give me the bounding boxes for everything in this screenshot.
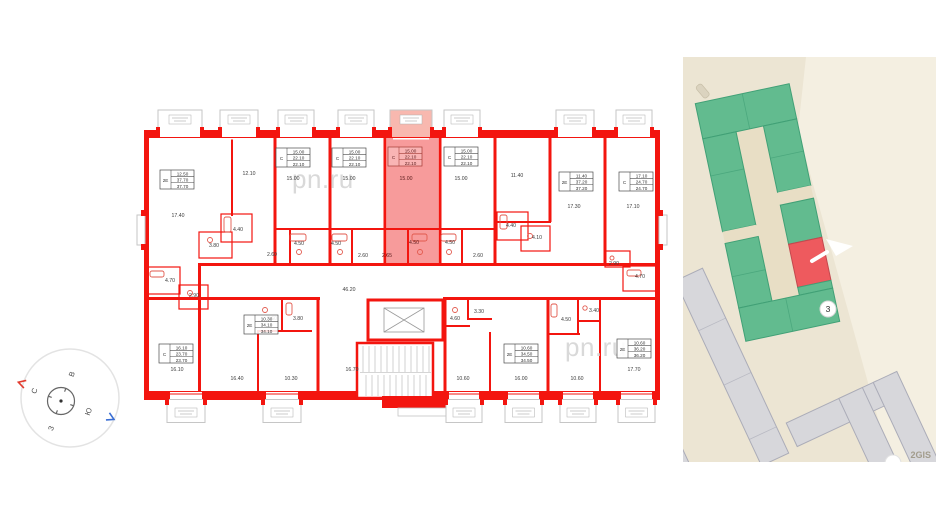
unit-area-2: 23.70 <box>176 352 188 357</box>
unit-area-1: 15.00 <box>405 148 417 153</box>
unit-area-1: 11.40 <box>576 173 588 178</box>
bay-window-left <box>137 210 147 250</box>
room-area-label: 4.50 <box>409 240 419 246</box>
room-area-label: 2.60 <box>358 253 368 259</box>
room-area-label: 4.50 <box>445 240 455 246</box>
balcony-tag <box>169 115 191 124</box>
room-area-label: 15.00 <box>287 176 300 182</box>
room-area-label: 3.30 <box>474 309 484 315</box>
elevator <box>368 300 443 340</box>
room-area-label: 10.60 <box>571 376 584 382</box>
room-area-label: 17.10 <box>627 204 640 210</box>
unit-area-1: 10.60 <box>634 340 646 345</box>
room-area-label: 4.70 <box>635 274 645 280</box>
unit-area-3: 24.70 <box>636 186 648 191</box>
unit-area-1: 15.00 <box>461 148 473 153</box>
room-area-label: 2.60 <box>473 253 483 259</box>
unit-area-1: 16.10 <box>176 345 188 350</box>
unit-label[interactable]: С15.0022.1022.10 <box>444 147 478 166</box>
balcony-tag <box>228 115 250 124</box>
unit-area-3: 22.10 <box>461 161 473 166</box>
unit-area-1: 10.60 <box>521 345 533 350</box>
unit-label[interactable]: С15.0022.1022.10 <box>276 148 310 167</box>
unit-area-2: 22.10 <box>349 156 361 161</box>
balcony <box>444 392 484 423</box>
balcony-tag <box>285 115 307 124</box>
balcony <box>156 110 204 140</box>
room-area-label: 4.50 <box>331 241 341 247</box>
map-control-partial[interactable] <box>885 455 901 471</box>
compass-center-dot <box>59 399 62 402</box>
unit-area-3: 34.50 <box>521 358 533 363</box>
room-area-label: 16.40 <box>231 376 244 382</box>
unit-label[interactable]: 2Е10.3034.1034.10 <box>244 315 278 334</box>
unit-area-3: 34.10 <box>261 329 273 334</box>
unit-area-3: 37.20 <box>576 186 588 191</box>
balcony <box>503 392 544 423</box>
balcony-tag <box>623 115 645 124</box>
balcony-tag <box>567 408 589 417</box>
room-area-label: 4.40 <box>233 227 243 233</box>
balcony <box>165 392 207 423</box>
balcony <box>336 110 376 140</box>
balcony <box>218 110 260 140</box>
balcony-tag <box>564 115 586 124</box>
unit-area-2: 36.20 <box>634 347 646 352</box>
unit-area-2: 24.70 <box>636 180 648 185</box>
room-area-label: 12.10 <box>243 171 256 177</box>
unit-area-3: 22.10 <box>293 162 305 167</box>
unit-area-1: 10.30 <box>261 316 273 321</box>
unit-area-2: 34.10 <box>261 323 273 328</box>
map-building-marker[interactable]: 3 <box>820 301 836 317</box>
balcony <box>388 110 434 140</box>
unit-type: 2Е <box>247 323 253 328</box>
room-area-label: 15.00 <box>343 176 356 182</box>
room-area-label: 15.00 <box>455 176 468 182</box>
balcony-tag <box>626 408 648 417</box>
unit-area-1: 15.00 <box>293 149 305 154</box>
balcony <box>276 110 316 140</box>
unit-area-2: 34.50 <box>521 352 533 357</box>
unit-area-3: 22.10 <box>349 162 361 167</box>
room-area-label: 16.10 <box>171 367 184 373</box>
room-area-label: 2.60 <box>267 252 277 258</box>
stairs <box>357 343 433 398</box>
map-attribution: 2GIS <box>910 450 931 460</box>
unit-label[interactable]: 2Е10.6036.2036.20 <box>617 339 651 358</box>
room-area-label: 16.70 <box>346 367 359 373</box>
room-area-label: 4.50 <box>561 317 571 323</box>
map-building-marker-number: 3 <box>826 304 831 314</box>
room-area-label: 4.40 <box>506 223 516 229</box>
unit-label[interactable]: С15.0022.1022.10 <box>332 148 366 167</box>
balcony <box>614 110 654 140</box>
balcony-tag <box>453 408 475 417</box>
balcony <box>558 392 598 423</box>
unit-area-3: 23.70 <box>176 358 188 363</box>
unit-label[interactable]: 2Е12.5037.7037.70 <box>160 170 194 189</box>
unit-area-1: 15.00 <box>349 149 361 154</box>
unit-area-2: 22.10 <box>461 155 473 160</box>
balcony-tag <box>271 408 293 417</box>
balcony-tag <box>345 115 367 124</box>
room-area-label: 3.80 <box>293 316 303 322</box>
unit-area-2: 22.10 <box>405 155 417 160</box>
unit-area-2: 22.10 <box>293 156 305 161</box>
unit-label[interactable]: С15.0022.1022.10 <box>388 147 422 166</box>
unit-label[interactable]: 2Е11.4037.2037.20 <box>559 172 593 191</box>
room-area-label: 4.10 <box>532 235 542 241</box>
room-area-label: 17.40 <box>172 213 185 219</box>
unit-label[interactable]: 2Е10.6034.5034.50 <box>504 344 538 363</box>
balcony-tag <box>451 115 473 124</box>
room-area-label: 15.00 <box>400 176 413 182</box>
minimap[interactable]: 3 2GIS <box>648 57 936 527</box>
unit-label[interactable]: С17.1024.7024.70 <box>619 172 653 191</box>
unit-area-2: 37.70 <box>177 178 189 183</box>
unit-area-3: 37.70 <box>177 184 189 189</box>
screenshot-root: pn.ru pn.ru 17.4012.1015.0015.0015.0015.… <box>0 0 936 527</box>
balcony <box>616 392 657 423</box>
room-area-label: 4.60 <box>450 316 460 322</box>
room-area-label: 3.80 <box>209 243 219 249</box>
room-area-label: 4.50 <box>294 241 304 247</box>
room-area-label: 10.30 <box>285 376 298 382</box>
balcony-tag <box>400 115 422 124</box>
balcony <box>554 110 596 140</box>
room-area-label: 17.70 <box>628 367 641 373</box>
floorplan: pn.ru pn.ru 17.4012.1015.0015.0015.0015.… <box>137 110 667 423</box>
unit-type: 2Е <box>562 180 568 185</box>
unit-area-1: 12.50 <box>177 171 189 176</box>
unit-type: 2Е <box>507 352 513 357</box>
unit-area-3: 36.20 <box>634 353 646 358</box>
unit-area-1: 17.10 <box>636 173 648 178</box>
unit-type: 2Е <box>620 347 626 352</box>
room-area-label: 4.70 <box>165 278 175 284</box>
room-area-label: 2.65 <box>382 253 392 259</box>
room-area-label: 2.90 <box>609 261 619 267</box>
room-area-label: 2.90 <box>189 293 199 299</box>
balcony <box>442 110 482 140</box>
room-area-label: 10.60 <box>457 376 470 382</box>
room-area-label: 46.20 <box>343 287 356 293</box>
room-area-label: 16.00 <box>515 376 528 382</box>
unit-label[interactable]: С16.1023.7023.70 <box>159 344 193 363</box>
room-area-label: 3.40 <box>589 308 599 314</box>
balcony-tag <box>175 408 197 417</box>
balcony <box>261 392 303 423</box>
room-area-label: 11.40 <box>511 173 524 179</box>
unit-area-2: 37.20 <box>576 180 588 185</box>
unit-type: 2Е <box>163 178 169 183</box>
unit-area-3: 22.10 <box>405 161 417 166</box>
compass-rose: С В Ю З <box>17 349 119 447</box>
balcony-tag <box>513 408 535 417</box>
bay-window-right <box>657 210 667 250</box>
room-area-label: 17.30 <box>568 204 581 210</box>
